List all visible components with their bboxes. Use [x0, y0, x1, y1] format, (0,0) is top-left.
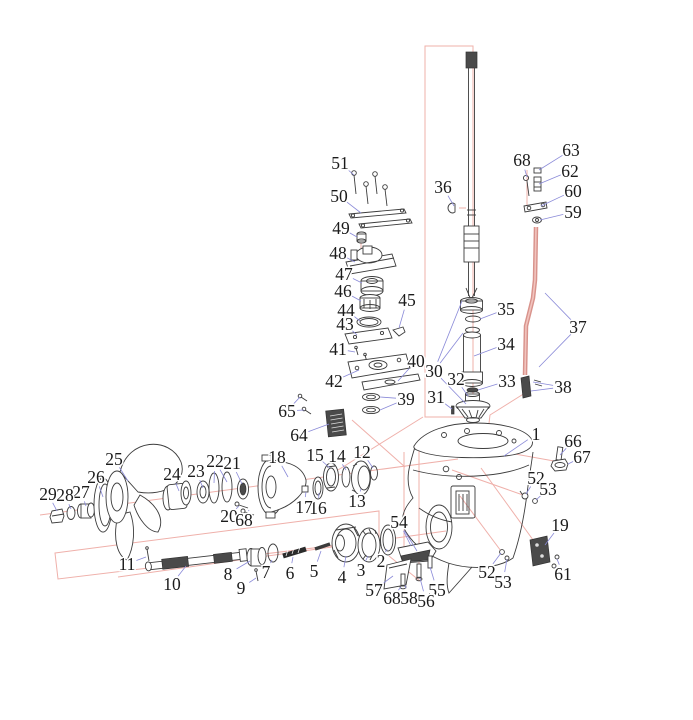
- shift-rod-assembly: [521, 168, 547, 398]
- rod-retainer-38: [521, 376, 542, 398]
- part-label-68a: 68: [235, 510, 253, 530]
- leader-line-31: [444, 403, 452, 409]
- part-label-47: 47: [335, 264, 353, 284]
- bolt-56: [416, 564, 422, 581]
- part-label-48: 48: [329, 243, 347, 263]
- pin-9: [255, 569, 258, 581]
- leader-line-38: [531, 388, 553, 391]
- part-label-52b: 52: [478, 562, 496, 582]
- part-label-39: 39: [397, 389, 415, 409]
- leader-line-35: [480, 313, 497, 319]
- part-label-2: 2: [377, 551, 386, 571]
- impeller-46: [360, 295, 380, 312]
- part-label-51: 51: [331, 153, 349, 173]
- leader-line-55: [430, 567, 434, 580]
- part-label-40: 40: [407, 351, 425, 371]
- part-label-4: 4: [338, 567, 347, 587]
- leader-line-60: [541, 195, 564, 206]
- part-label-53a: 53: [539, 479, 557, 499]
- gearcase-housing: [402, 423, 533, 593]
- part-label-41: 41: [329, 339, 347, 359]
- part-label-17: 17: [295, 497, 313, 517]
- part-label-26: 26: [87, 467, 105, 487]
- part-label-8: 8: [224, 564, 233, 584]
- leader-line-37: [545, 293, 571, 320]
- pin-5: [315, 544, 330, 549]
- part-label-3: 3: [357, 560, 366, 580]
- washer-16: [313, 477, 323, 499]
- leader-line-63: [539, 155, 563, 170]
- gasket-44: [357, 317, 381, 327]
- part-label-45: 45: [398, 290, 416, 310]
- part-label-33: 33: [498, 371, 516, 391]
- part-label-42: 42: [325, 371, 343, 391]
- part-label-19: 19: [551, 515, 569, 535]
- part-label-32: 32: [447, 369, 465, 389]
- shift-link-plates: [349, 209, 412, 228]
- impeller-cup-47: [361, 277, 383, 296]
- part-label-31: 31: [427, 387, 445, 407]
- leader-line-59: [540, 214, 563, 220]
- part-label-57: 57: [365, 580, 383, 600]
- leader-line-38: [533, 382, 553, 385]
- part-label-37: 37: [569, 317, 587, 337]
- part-label-68b: 68: [513, 150, 531, 170]
- part-label-68c: 68: [383, 588, 401, 608]
- pin: [452, 406, 455, 414]
- leader-line-39: [380, 403, 397, 410]
- part-label-6: 6: [286, 563, 295, 583]
- pinion-gear: [456, 401, 490, 423]
- part-label-65: 65: [278, 401, 296, 421]
- bolt-55: [428, 556, 432, 568]
- cap-63: [534, 168, 541, 173]
- part-label-46: 46: [334, 281, 352, 301]
- part-label-15: 15: [306, 445, 324, 465]
- anode-19: [530, 536, 550, 566]
- part-label-12: 12: [353, 442, 371, 462]
- part-label-63: 63: [562, 140, 580, 160]
- diagram-svg: 1234567891011121314151617181920212223242…: [0, 0, 693, 720]
- seal-21: [238, 479, 249, 499]
- driveshaft-bearing: [461, 298, 483, 314]
- leader-line-5: [317, 551, 321, 562]
- part-label-29: 29: [39, 484, 57, 504]
- guide-plate-42: [348, 354, 410, 378]
- leader-line-11: [136, 557, 146, 561]
- part-label-28: 28: [56, 485, 74, 505]
- leader-line-8: [237, 561, 250, 569]
- part-label-56: 56: [417, 591, 435, 611]
- clip-45: [393, 327, 405, 336]
- part-label-49: 49: [332, 218, 350, 238]
- part-label-60: 60: [564, 181, 582, 201]
- part-label-34: 34: [497, 334, 515, 354]
- part-label-13: 13: [348, 491, 366, 511]
- leader-line-34: [474, 348, 497, 357]
- leader-line-62: [539, 175, 561, 184]
- leader-line-37: [539, 334, 571, 367]
- part-label-58: 58: [400, 588, 418, 608]
- leader-line-53b: [505, 559, 507, 572]
- clip-36: [448, 203, 455, 213]
- gasket-40: [362, 374, 420, 390]
- driveshaft-assembly: [452, 52, 491, 423]
- part-label-59: 59: [564, 202, 582, 222]
- leader-line-49: [350, 233, 357, 237]
- part-label-7: 7: [262, 562, 271, 582]
- shim-washers-39: [363, 393, 380, 413]
- part-label-14: 14: [328, 446, 346, 466]
- leader-line-9: [249, 578, 256, 583]
- plate-64: [326, 409, 347, 437]
- leader-line-39: [380, 397, 396, 398]
- leader-line-22: [214, 471, 215, 483]
- driveshaft-spline-top: [466, 52, 477, 68]
- leader-line-64: [308, 424, 329, 432]
- part-label-36: 36: [434, 177, 452, 197]
- pump-housing-48: [346, 246, 396, 274]
- bolts-51: [352, 171, 388, 206]
- part-label-18: 18: [268, 447, 286, 467]
- part-label-23: 23: [187, 461, 205, 481]
- part-label-24: 24: [163, 464, 181, 484]
- part-label-11: 11: [119, 554, 136, 574]
- part-label-62: 62: [561, 161, 579, 181]
- exploded-parts-diagram: 1234567891011121314151617181920212223242…: [0, 0, 693, 720]
- part-label-1: 1: [532, 424, 541, 444]
- leader-line-41: [348, 351, 355, 352]
- part-label-25: 25: [105, 449, 123, 469]
- anode-57: [384, 559, 411, 589]
- part-label-38: 38: [554, 377, 572, 397]
- pin-11: [146, 547, 149, 561]
- part-label-30: 30: [425, 361, 443, 381]
- part-label-67: 67: [573, 447, 591, 467]
- part-label-44: 44: [337, 300, 355, 320]
- part-label-54: 54: [390, 512, 408, 532]
- part-label-61: 61: [554, 564, 572, 584]
- part-label-9: 9: [237, 578, 246, 598]
- leader-line-44: [354, 316, 360, 321]
- prop-nut-29: [50, 509, 64, 523]
- part-label-35: 35: [497, 299, 515, 319]
- part-label-50: 50: [330, 186, 348, 206]
- bearing-23: [197, 481, 209, 503]
- part-label-64: 64: [290, 425, 308, 445]
- leader-line-30: [438, 301, 462, 362]
- part-label-5: 5: [310, 561, 319, 581]
- part-label-21: 21: [223, 453, 241, 473]
- part-label-22: 22: [206, 451, 224, 471]
- bolt-68-top: [523, 175, 529, 196]
- leader-line-50: [347, 202, 361, 213]
- o-ring-12: [371, 466, 378, 480]
- leader-line-45: [399, 310, 404, 328]
- part-label-27: 27: [72, 482, 90, 502]
- seal-cup-49: [357, 232, 366, 243]
- bearing-15: [324, 463, 339, 491]
- key-17: [302, 486, 308, 492]
- part-label-10: 10: [163, 574, 181, 594]
- part-label-53b: 53: [494, 572, 512, 592]
